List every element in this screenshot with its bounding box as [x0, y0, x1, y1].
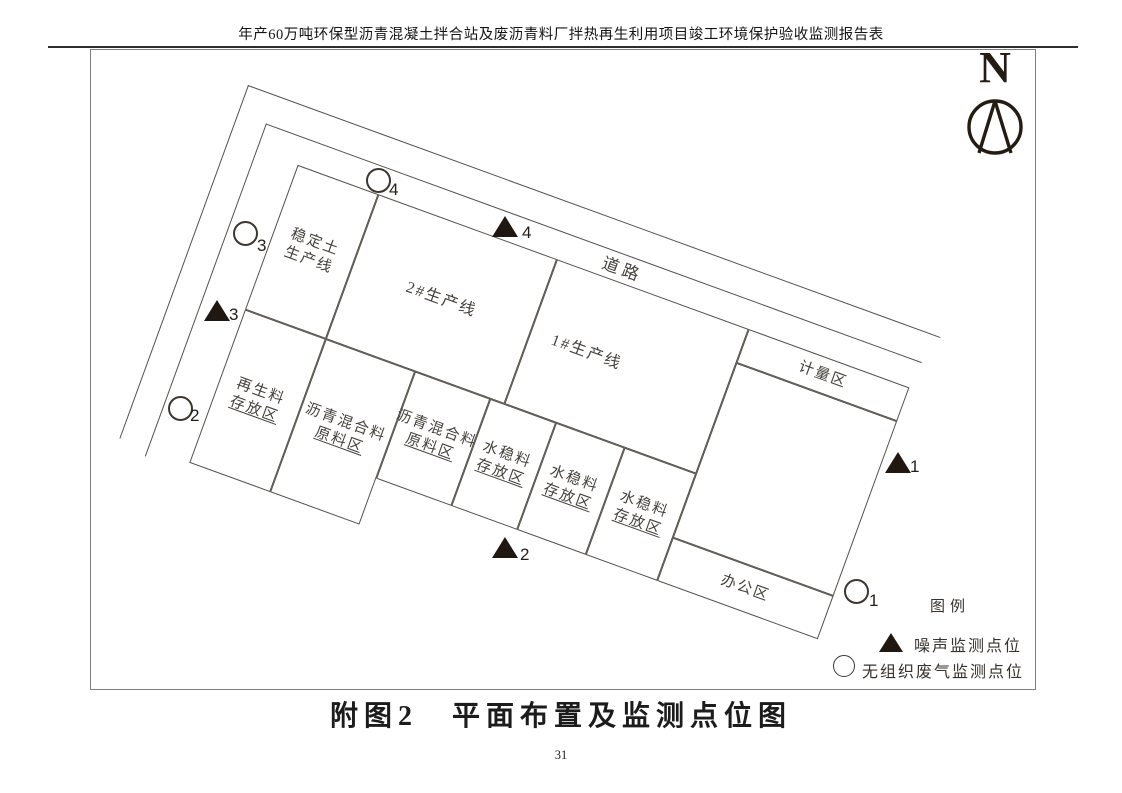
block-label: 办公区	[718, 571, 772, 606]
gas-point-3-icon	[233, 221, 258, 246]
north-label: N	[966, 46, 1024, 90]
north-compass-icon	[965, 97, 1025, 159]
block-label: 2#生产线	[403, 277, 479, 320]
legend-gas-label: 无组织废气监测点位	[862, 658, 1024, 682]
figure-caption: 附图2 平面布置及监测点位图	[0, 694, 1122, 734]
gas-point-4-icon	[366, 168, 391, 193]
noise-point-2-icon	[492, 537, 518, 558]
noise-point-3-label: 3	[229, 306, 238, 323]
gas-point-1-label: 1	[869, 592, 878, 609]
block-label: 1#生产线	[549, 330, 625, 373]
legend-noise-triangle-icon	[879, 633, 903, 652]
legend-noise-label: 噪声监测点位	[914, 632, 1022, 656]
noise-point-3-icon	[204, 300, 230, 321]
legend-gas-circle-icon	[833, 655, 855, 677]
page-header: 年产60万吨环保型沥青混凝土拌合站及废沥青料厂拌热再生利用项目竣工环境保护验收监…	[0, 23, 1122, 44]
noise-point-1-icon	[885, 452, 911, 473]
header-rule	[48, 46, 1078, 48]
gas-point-3-label: 3	[257, 237, 266, 254]
gas-point-1-icon	[844, 579, 869, 604]
report-page: 年产60万吨环保型沥青混凝土拌合站及废沥青料厂拌热再生利用项目竣工环境保护验收监…	[0, 0, 1122, 793]
gas-point-4-label: 4	[389, 181, 398, 198]
noise-point-4-label: 4	[522, 224, 531, 241]
legend-title: 图例	[905, 595, 995, 616]
noise-point-4-icon	[492, 216, 518, 237]
page-number: 31	[0, 748, 1122, 763]
noise-point-2-label: 2	[520, 546, 529, 563]
gas-point-2-label: 2	[190, 407, 199, 424]
noise-point-1-label: 1	[910, 458, 919, 475]
